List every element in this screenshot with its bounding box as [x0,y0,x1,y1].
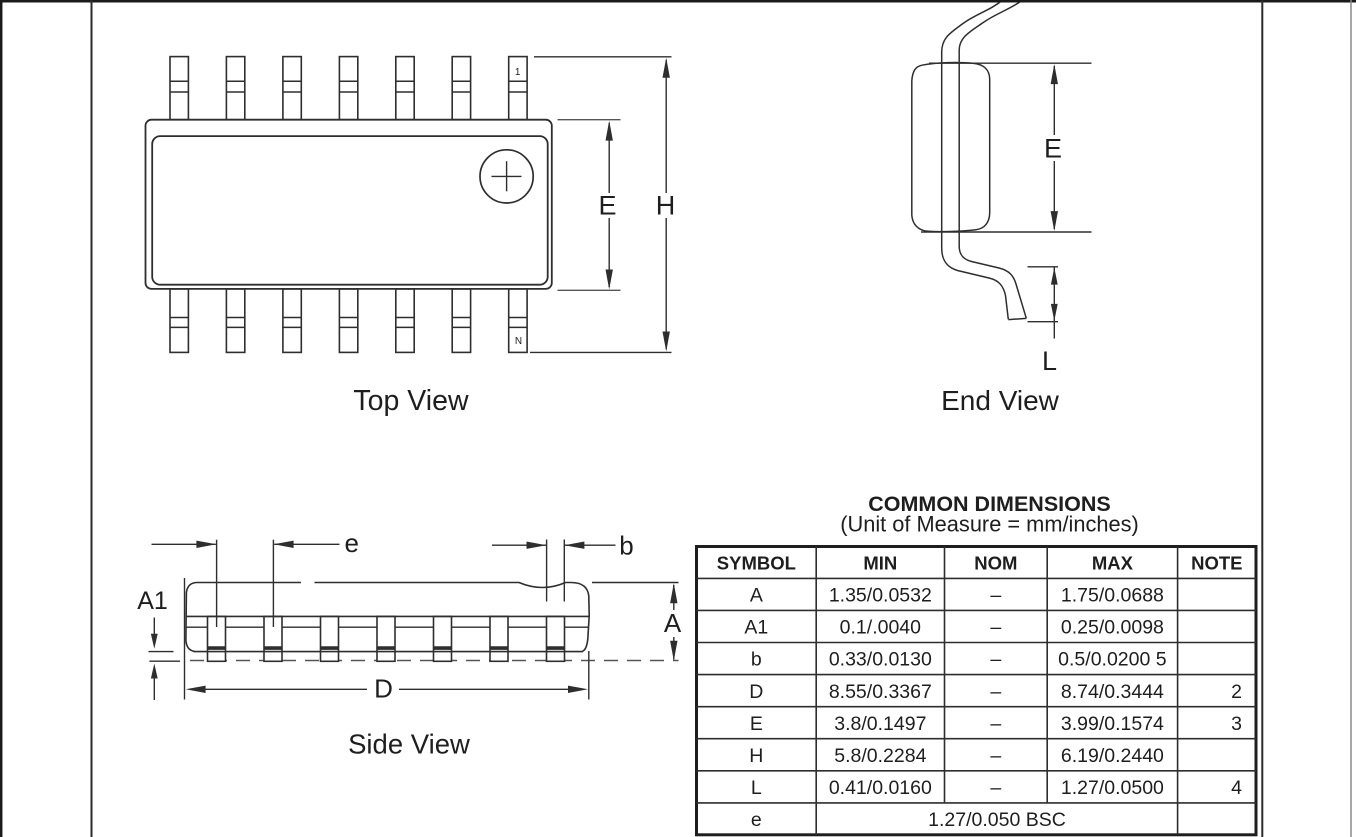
svg-text:N: N [515,336,522,347]
svg-text:MIN: MIN [863,553,897,574]
svg-text:e: e [344,528,358,558]
svg-text:1.27/0.050 BSC: 1.27/0.050 BSC [928,809,1066,831]
svg-text:0.33/0.0130: 0.33/0.0130 [829,649,932,671]
svg-text:SYMBOL: SYMBOL [717,553,796,574]
svg-text:3.99/0.1574: 3.99/0.1574 [1061,713,1164,735]
svg-text:1.75/0.0688: 1.75/0.0688 [1061,585,1164,607]
svg-text:H: H [749,745,763,767]
svg-text:NOTE: NOTE [1191,553,1242,574]
svg-text:H: H [656,191,676,221]
svg-text:E: E [750,713,763,735]
svg-text:–: – [990,777,1001,799]
svg-text:A1: A1 [744,617,768,639]
svg-text:A1: A1 [137,587,168,615]
svg-text:b: b [751,649,762,671]
svg-text:A: A [664,608,682,638]
svg-text:–: – [990,649,1001,671]
svg-text:–: – [990,585,1001,607]
svg-text:–: – [990,713,1001,735]
svg-text:L: L [1042,346,1057,376]
svg-text:–: – [990,617,1001,639]
svg-text:6.19/0.2440: 6.19/0.2440 [1061,745,1164,767]
svg-text:A: A [750,585,763,607]
svg-text:L: L [751,777,762,799]
svg-text:E: E [1044,134,1062,164]
svg-text:D: D [374,674,393,704]
svg-text:4: 4 [1231,777,1242,799]
svg-text:E: E [598,191,616,221]
svg-text:NOM: NOM [974,553,1017,574]
svg-text:1.35/0.0532: 1.35/0.0532 [829,585,932,607]
svg-text:Side View: Side View [348,729,470,760]
svg-text:0.25/0.0098: 0.25/0.0098 [1061,617,1164,639]
svg-text:–: – [990,681,1001,703]
svg-text:End View: End View [941,385,1060,416]
svg-text:0.5/0.0200 5: 0.5/0.0200 5 [1058,649,1167,671]
svg-text:1.27/0.0500: 1.27/0.0500 [1061,777,1164,799]
svg-text:5.8/0.2284: 5.8/0.2284 [834,745,926,767]
svg-text:3.8/0.1497: 3.8/0.1497 [834,713,926,735]
svg-text:Top View: Top View [353,385,469,417]
svg-text:e: e [751,809,762,831]
svg-text:1: 1 [515,67,521,78]
svg-text:0.1/.0040: 0.1/.0040 [840,617,921,639]
svg-text:3: 3 [1231,713,1242,735]
svg-text:b: b [619,531,633,561]
svg-text:D: D [749,681,763,703]
svg-text:–: – [990,745,1001,767]
svg-text:2: 2 [1231,681,1242,703]
svg-text:8.74/0.3444: 8.74/0.3444 [1061,681,1164,703]
svg-text:0.41/0.0160: 0.41/0.0160 [829,777,932,799]
svg-text:8.55/0.3367: 8.55/0.3367 [829,681,932,703]
svg-text:MAX: MAX [1092,553,1134,574]
svg-text:(Unit of Measure = mm/inches): (Unit of Measure = mm/inches) [840,512,1139,537]
